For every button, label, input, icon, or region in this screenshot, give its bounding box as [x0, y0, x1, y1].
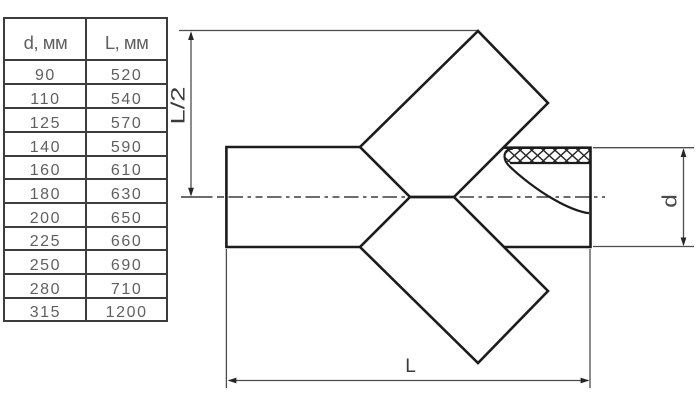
- svg-text:d: d: [660, 194, 682, 208]
- svg-text:L: L: [405, 356, 416, 377]
- svg-text:L/2: L/2: [168, 87, 190, 125]
